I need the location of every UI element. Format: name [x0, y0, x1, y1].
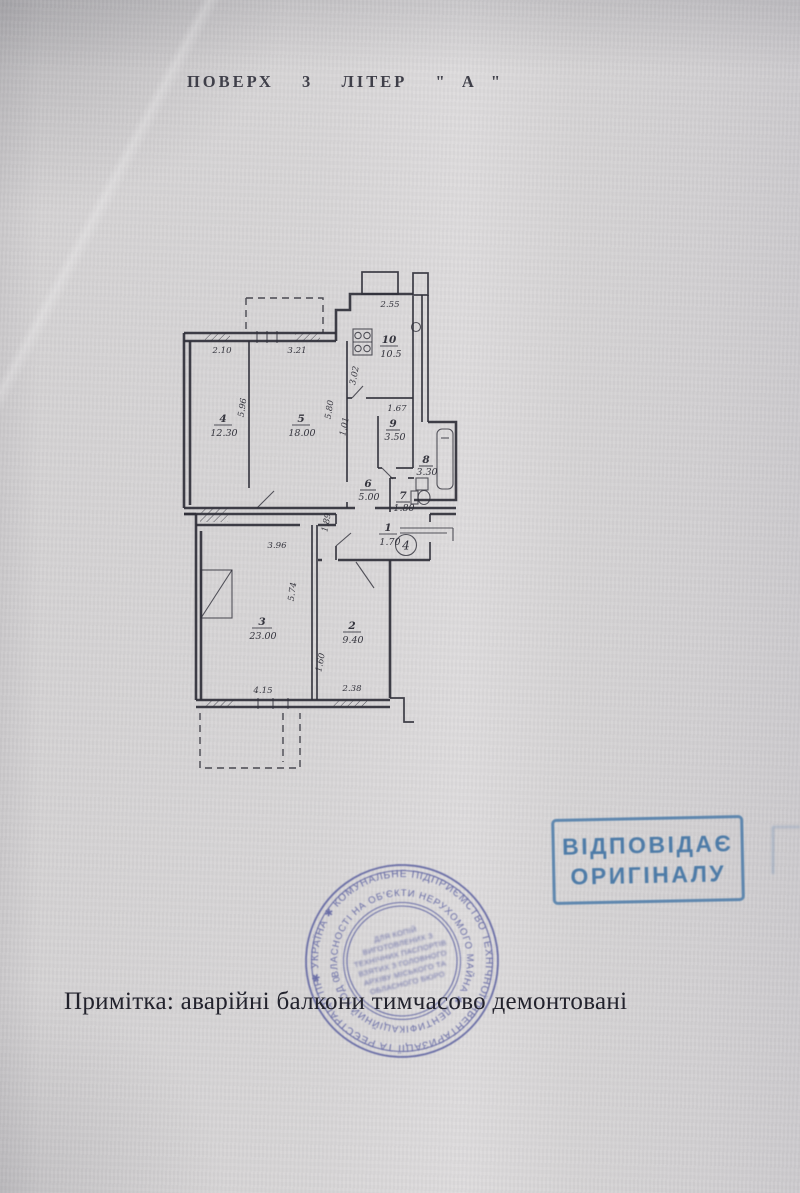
svg-text:3.30: 3.30: [416, 467, 437, 478]
svg-text:18.00: 18.00: [288, 428, 315, 439]
room-label-4: 4 12.30: [210, 413, 237, 439]
dimension-label: 5.96: [237, 397, 250, 418]
svg-text:5.00: 5.00: [358, 492, 379, 503]
room-label-3: 3 23.00: [248, 616, 276, 642]
bathtub-icon: [437, 429, 453, 489]
svg-text:10: 10: [382, 334, 397, 346]
svg-text:5: 5: [297, 413, 304, 425]
stove-icon: [353, 329, 372, 355]
wardrobe-niche: [201, 570, 232, 618]
stamp-rect-line1: ВІДПОВІДАЄ: [562, 828, 734, 862]
room-label-6: 6 5.00: [358, 478, 379, 503]
balcony-outline-top: [246, 298, 323, 333]
stamp-corresponds-to-original: ВІДПОВІДАЄ ОРИГІНАЛУ: [551, 815, 745, 905]
svg-text:8: 8: [422, 454, 430, 466]
room-label-8: 8 3.30: [416, 454, 437, 478]
stamp-rect-line2: ОРИГІНАЛУ: [570, 858, 726, 891]
svg-text:9.40: 9.40: [342, 635, 363, 646]
seal-center-text: ДЛЯ КОПІЙ ВИГОТОВЛЕНИХ З ТЕХНІЧНИХ ПАСПО…: [348, 918, 454, 998]
stamp-round-seal: ✱ УКРАЇНА ✱ КОМУНАЛЬНЕ ПІДПРИЄМСТВО ТЕХН…: [282, 841, 522, 1081]
floor-plan: 4 1 1.70 2 9.40 3 23.00 4 12.30 5 18.00 …: [160, 250, 480, 790]
room-label-2: 2 9.40: [342, 620, 363, 646]
svg-text:1: 1: [384, 522, 391, 534]
apartment-number: 4: [401, 539, 410, 553]
dimension-label: 3.02: [348, 365, 361, 386]
svg-text:1.70: 1.70: [379, 537, 400, 548]
svg-text:2: 2: [347, 620, 355, 632]
dimension-label: 5.80: [324, 399, 337, 420]
room-label-9: 9 3.50: [384, 418, 405, 443]
svg-text:7: 7: [399, 490, 407, 502]
dimension-label: 2.10: [211, 346, 232, 356]
dimension-label: 1.67: [387, 404, 407, 414]
dimension-label: 3.21: [287, 346, 306, 356]
balcony-outline-bottom: [200, 713, 300, 768]
dimension-label: 1.01: [338, 416, 351, 437]
svg-text:4: 4: [219, 413, 226, 425]
svg-text:3: 3: [258, 616, 265, 628]
bleed-through-mark: [772, 826, 800, 874]
room-label-5: 5 18.00: [288, 413, 315, 439]
dimension-label: 2.55: [379, 300, 399, 310]
sink-icon: [416, 478, 428, 490]
dimension-label: 4.15: [252, 686, 272, 696]
room-label-1: 1 1.70: [379, 522, 401, 548]
dimension-label: 5.74: [287, 582, 300, 602]
svg-text:23.00: 23.00: [248, 631, 276, 642]
walls-upper-block: [184, 272, 456, 522]
svg-text:6: 6: [364, 478, 372, 490]
scanned-document-page: { "header": { "title": "ПОВЕРХ 3 ЛІТЕР \…: [0, 0, 800, 1193]
svg-text:9: 9: [389, 418, 397, 430]
dimension-label: 3.96: [267, 541, 287, 551]
svg-text:10.5: 10.5: [380, 349, 401, 360]
page-title: ПОВЕРХ 3 ЛІТЕР " А ": [0, 72, 690, 92]
svg-text:3.50: 3.50: [384, 432, 405, 443]
floor-plan-drawing: 4 1 1.70 2 9.40 3 23.00 4 12.30 5 18.00 …: [160, 250, 480, 790]
svg-text:1.80: 1.80: [393, 503, 414, 514]
note-text: Примітка: аварійні балкони тимчасово дем…: [64, 988, 704, 1016]
room-label-10: 10 10.5: [380, 334, 402, 360]
svg-text:12.30: 12.30: [210, 428, 237, 439]
dimension-label: 2.38: [341, 684, 362, 694]
